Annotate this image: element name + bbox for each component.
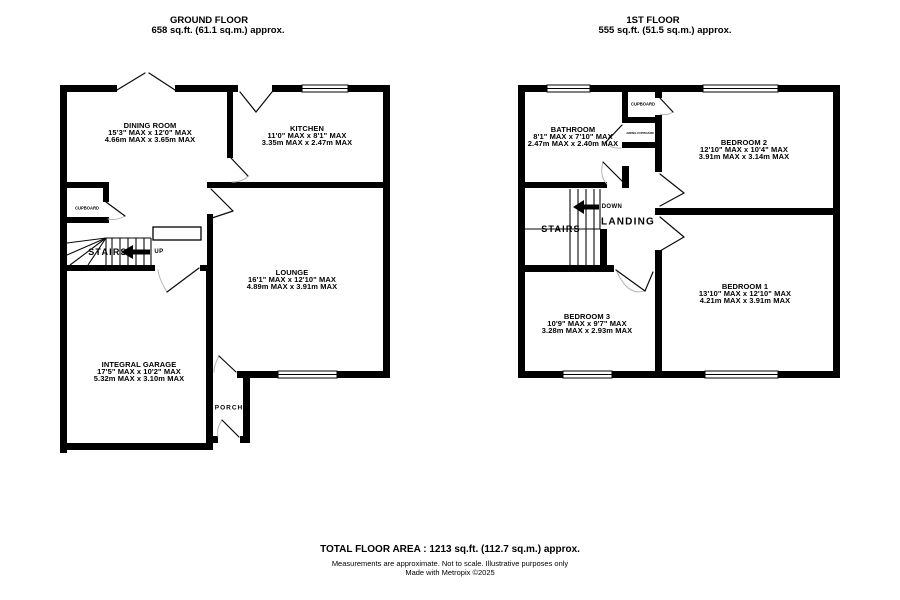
room-label-bedroom2: BEDROOM 2 12'10" MAX x 10'4" MAX 3.91m M… <box>699 139 789 161</box>
window <box>302 85 348 92</box>
ground-floor-area: 658 sq.ft. (61.1 sq.m.) approx. <box>151 25 284 36</box>
room-label-lounge: LOUNGE 16'1" MAX x 12'10" MAX 4.89m MAX … <box>247 269 337 291</box>
room-label-bathroom: BATHROOM 8'1" MAX x 7'10" MAX 2.47m MAX … <box>528 126 618 148</box>
hall-window <box>153 227 201 240</box>
window <box>703 85 778 92</box>
stairs-label-first: STAIRS <box>541 224 581 234</box>
window <box>278 371 337 378</box>
room-dim-metric: 4.21m MAX x 3.91m MAX <box>699 297 791 304</box>
room-label-airing-cupboard: AIRING CUPBOARD <box>626 131 654 134</box>
room-dim-metric: 4.89m MAX x 3.91m MAX <box>247 283 337 290</box>
room-label-bedroom1: BEDROOM 1 13'10" MAX x 12'10" MAX 4.21m … <box>699 283 791 305</box>
room-dim-metric: 3.28m MAX x 2.93m MAX <box>542 327 632 334</box>
room-label-kitchen: KITCHEN 11'0" MAX x 8'1" MAX 3.35m MAX x… <box>262 125 352 147</box>
window <box>705 371 778 378</box>
room-label-landing: LANDING <box>601 217 655 228</box>
stairs-down-label: DOWN <box>602 204 623 210</box>
room-label-porch: PORCH <box>215 405 243 412</box>
floorplan-page: GROUND FLOOR 658 sq.ft. (61.1 sq.m.) app… <box>0 0 900 600</box>
disclaimer-text: Measurements are approximate. Not to sca… <box>332 559 568 568</box>
stairs-label-ground: STAIRS <box>88 247 128 257</box>
room-dim-metric: 3.35m MAX x 2.47m MAX <box>262 139 352 146</box>
first-floor-area: 555 sq.ft. (51.5 sq.m.) approx. <box>598 25 731 36</box>
room-label-dining: DINING ROOM 15'3" MAX x 12'0" MAX 4.66m … <box>105 122 195 144</box>
room-label-cupboard-ground: CUPBOARD <box>75 206 99 211</box>
room-label-garage: INTEGRAL GARAGE 17'5" MAX x 10'2" MAX 5.… <box>94 361 184 383</box>
total-floor-area: TOTAL FLOOR AREA : 1213 sq.ft. (112.7 sq… <box>320 544 580 555</box>
room-label-cupboard-first: CUPBOARD <box>631 102 655 107</box>
credit-text: Made with Metropix ©2025 <box>405 568 494 577</box>
stairs-up-label: UP <box>154 249 163 255</box>
room-dim-metric: 2.47m MAX x 2.40m MAX <box>528 140 618 147</box>
window <box>563 371 612 378</box>
room-dim-metric: 4.66m MAX x 3.65m MAX <box>105 136 195 143</box>
room-label-bedroom3: BEDROOM 3 10'9" MAX x 9'7" MAX 3.28m MAX… <box>542 313 632 335</box>
room-dim-metric: 5.32m MAX x 3.10m MAX <box>94 375 184 382</box>
room-dim-metric: 3.91m MAX x 3.14m MAX <box>699 153 789 160</box>
window <box>547 85 590 92</box>
